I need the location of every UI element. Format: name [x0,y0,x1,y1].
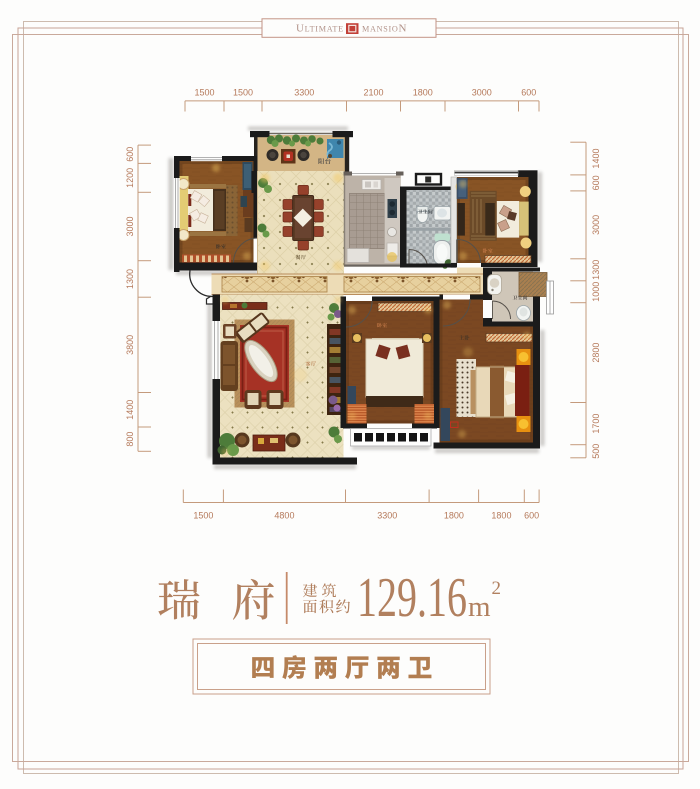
svg-text:3000: 3000 [591,215,601,235]
svg-text:1000: 1000 [591,282,601,302]
svg-text:4800: 4800 [274,511,294,521]
svg-text:1500: 1500 [233,88,253,98]
svg-text:1300: 1300 [125,269,135,289]
svg-text:600: 600 [521,88,536,98]
svg-text:2100: 2100 [363,88,383,98]
svg-text:1200: 1200 [125,168,135,188]
svg-text:600: 600 [591,175,601,190]
svg-text:600: 600 [524,511,539,521]
svg-text:1400: 1400 [591,149,601,169]
svg-text:m: m [468,591,491,623]
svg-text:1800: 1800 [491,511,511,521]
svg-text:2800: 2800 [591,343,601,363]
svg-text:3000: 3000 [472,88,492,98]
svg-text:1700: 1700 [591,414,601,434]
svg-text:3300: 3300 [294,88,314,98]
svg-text:1500: 1500 [194,88,214,98]
svg-text:1500: 1500 [193,511,213,521]
svg-text:2: 2 [492,578,502,599]
svg-text:129.16: 129.16 [357,567,467,629]
svg-text:1300: 1300 [591,260,601,280]
svg-text:1800: 1800 [413,88,433,98]
svg-text:1400: 1400 [125,400,135,420]
svg-text:800: 800 [125,432,135,447]
svg-text:500: 500 [591,444,601,459]
svg-text:3300: 3300 [377,511,397,521]
svg-text:MANSION: MANSION [362,23,407,35]
svg-text:1800: 1800 [444,511,464,521]
svg-text:600: 600 [125,147,135,162]
svg-text:ULTIMATE: ULTIMATE [296,23,344,35]
svg-text:3800: 3800 [125,335,135,355]
svg-text:3000: 3000 [125,216,135,236]
